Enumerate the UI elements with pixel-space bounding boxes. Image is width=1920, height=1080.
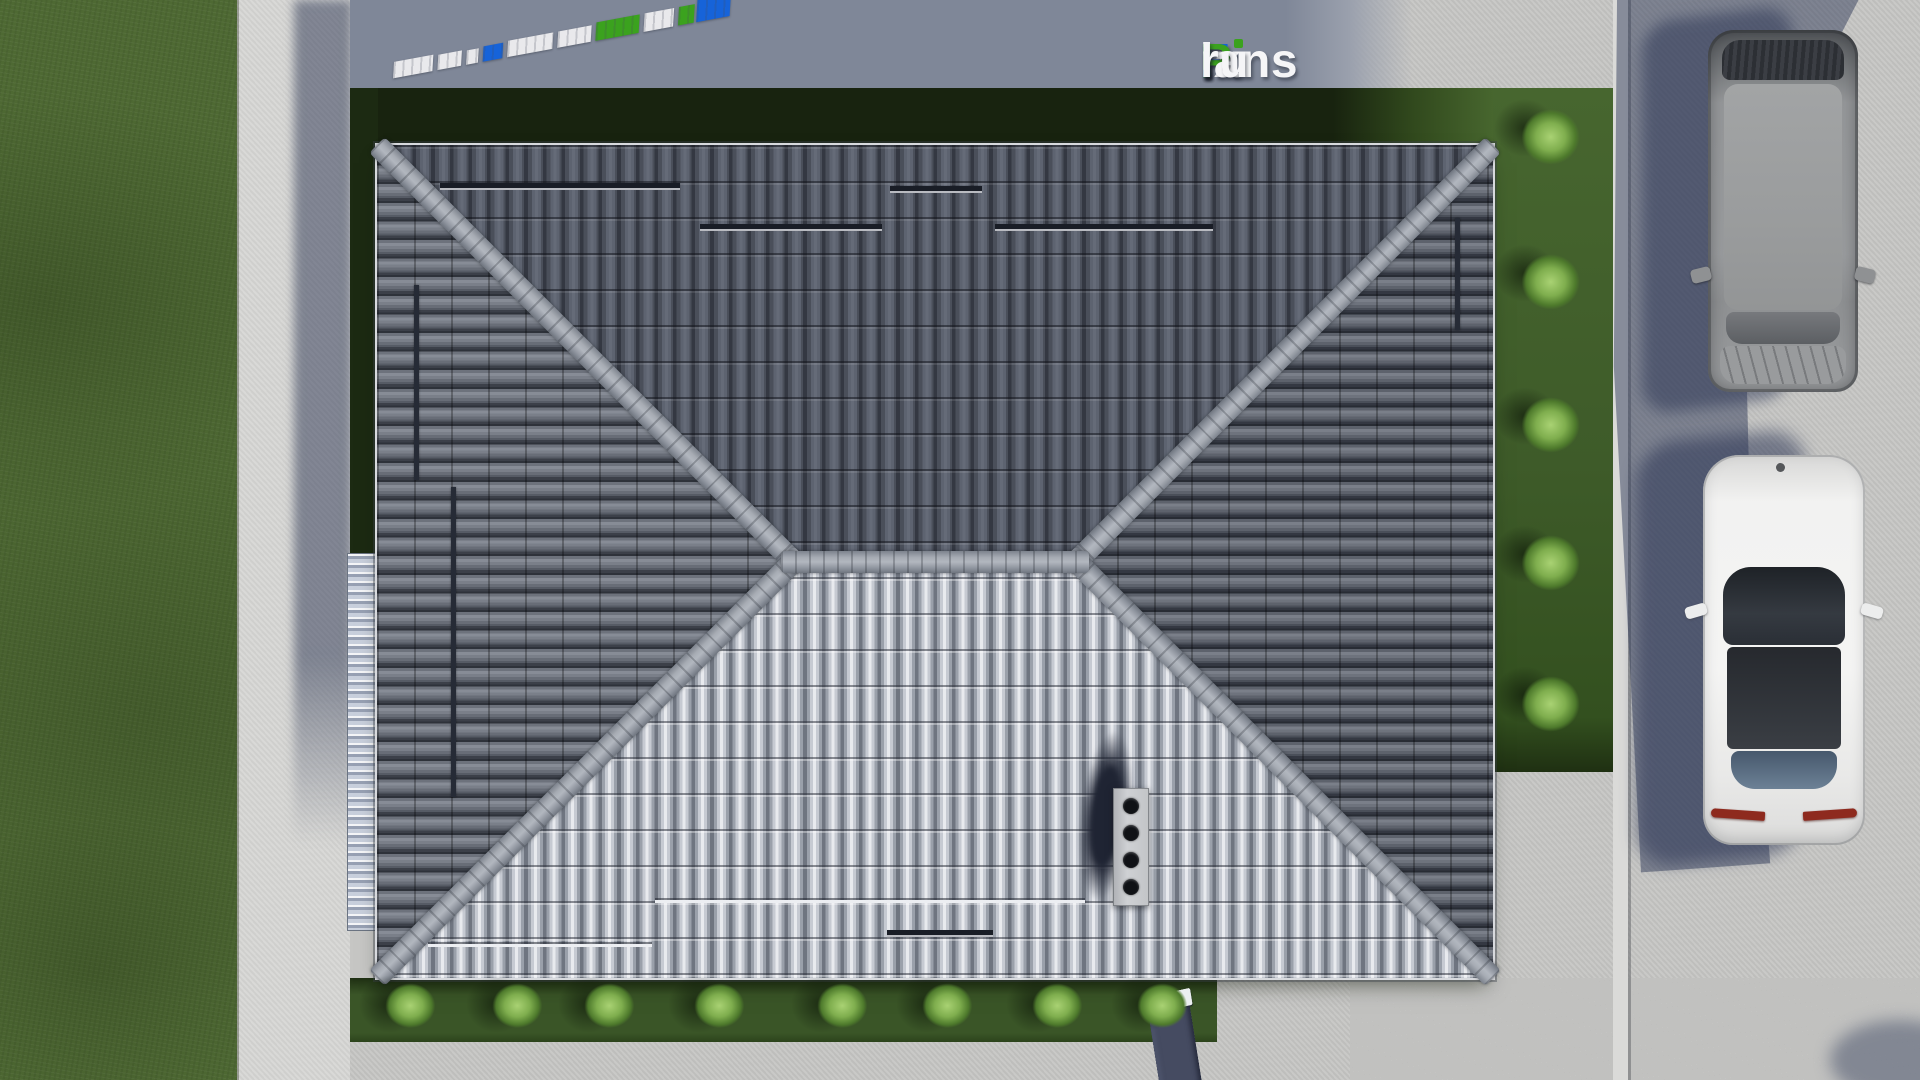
snow-guard-rail bbox=[995, 224, 1213, 231]
snow-guard-rail bbox=[890, 186, 982, 193]
roof-rail-vertical bbox=[1455, 218, 1460, 330]
chimney-flue-hole bbox=[1123, 825, 1139, 841]
left-lawn bbox=[0, 0, 237, 1080]
suv-mirror-left bbox=[1690, 266, 1713, 284]
garden-bush bbox=[914, 976, 988, 1042]
snow-guard-rail bbox=[440, 183, 680, 190]
watermark-block bbox=[678, 4, 695, 25]
chimney-vent-block bbox=[1113, 788, 1149, 906]
glass-canopy bbox=[347, 553, 379, 931]
parked-suv bbox=[1708, 30, 1858, 392]
side-bush bbox=[1512, 100, 1598, 182]
chimney-flue-hole bbox=[1123, 879, 1139, 895]
side-bush bbox=[1512, 667, 1598, 749]
sedan-emblem bbox=[1776, 463, 1785, 472]
snow-guard-rail bbox=[700, 224, 882, 231]
garden-bush bbox=[377, 976, 451, 1042]
garden-bush bbox=[1129, 976, 1203, 1042]
hip-roof bbox=[377, 145, 1493, 978]
chimney-flue-hole bbox=[1123, 798, 1139, 814]
garden-bush bbox=[1024, 976, 1098, 1042]
sedan-taillight-right bbox=[1803, 808, 1857, 821]
suv-hood bbox=[1720, 346, 1846, 384]
snow-guard-rail bbox=[655, 898, 1085, 903]
watermark-block bbox=[466, 48, 479, 65]
sedan-taillight-left bbox=[1711, 808, 1765, 821]
side-bush bbox=[1512, 526, 1598, 608]
chimney-flue-hole bbox=[1123, 852, 1139, 868]
side-bush bbox=[1512, 388, 1598, 470]
snow-guard-rail bbox=[887, 930, 993, 937]
side-bush bbox=[1512, 245, 1598, 327]
north-lot-grass-shadowed bbox=[350, 88, 1493, 146]
parked-white-sedan bbox=[1703, 455, 1865, 845]
garden-bush bbox=[809, 976, 883, 1042]
ridge-cap bbox=[781, 551, 1089, 573]
roof-rail-vertical bbox=[414, 285, 419, 480]
garden-bush bbox=[576, 976, 650, 1042]
suv-roof bbox=[1724, 84, 1842, 310]
suv-rear-window bbox=[1722, 40, 1844, 80]
snow-guard-rail bbox=[428, 942, 652, 947]
sedan-panoramic-roof bbox=[1727, 647, 1841, 749]
walkway-cast-shadow bbox=[294, 0, 352, 845]
roof-rail-vertical bbox=[451, 487, 456, 797]
logo-i-dot bbox=[1234, 39, 1243, 48]
garden-bush bbox=[686, 976, 760, 1042]
sedan-rear-window bbox=[1731, 751, 1837, 789]
render-scene: FixPlans.ru bbox=[0, 0, 1920, 1080]
suv-windshield bbox=[1726, 312, 1840, 344]
sedan-windshield bbox=[1723, 567, 1845, 645]
